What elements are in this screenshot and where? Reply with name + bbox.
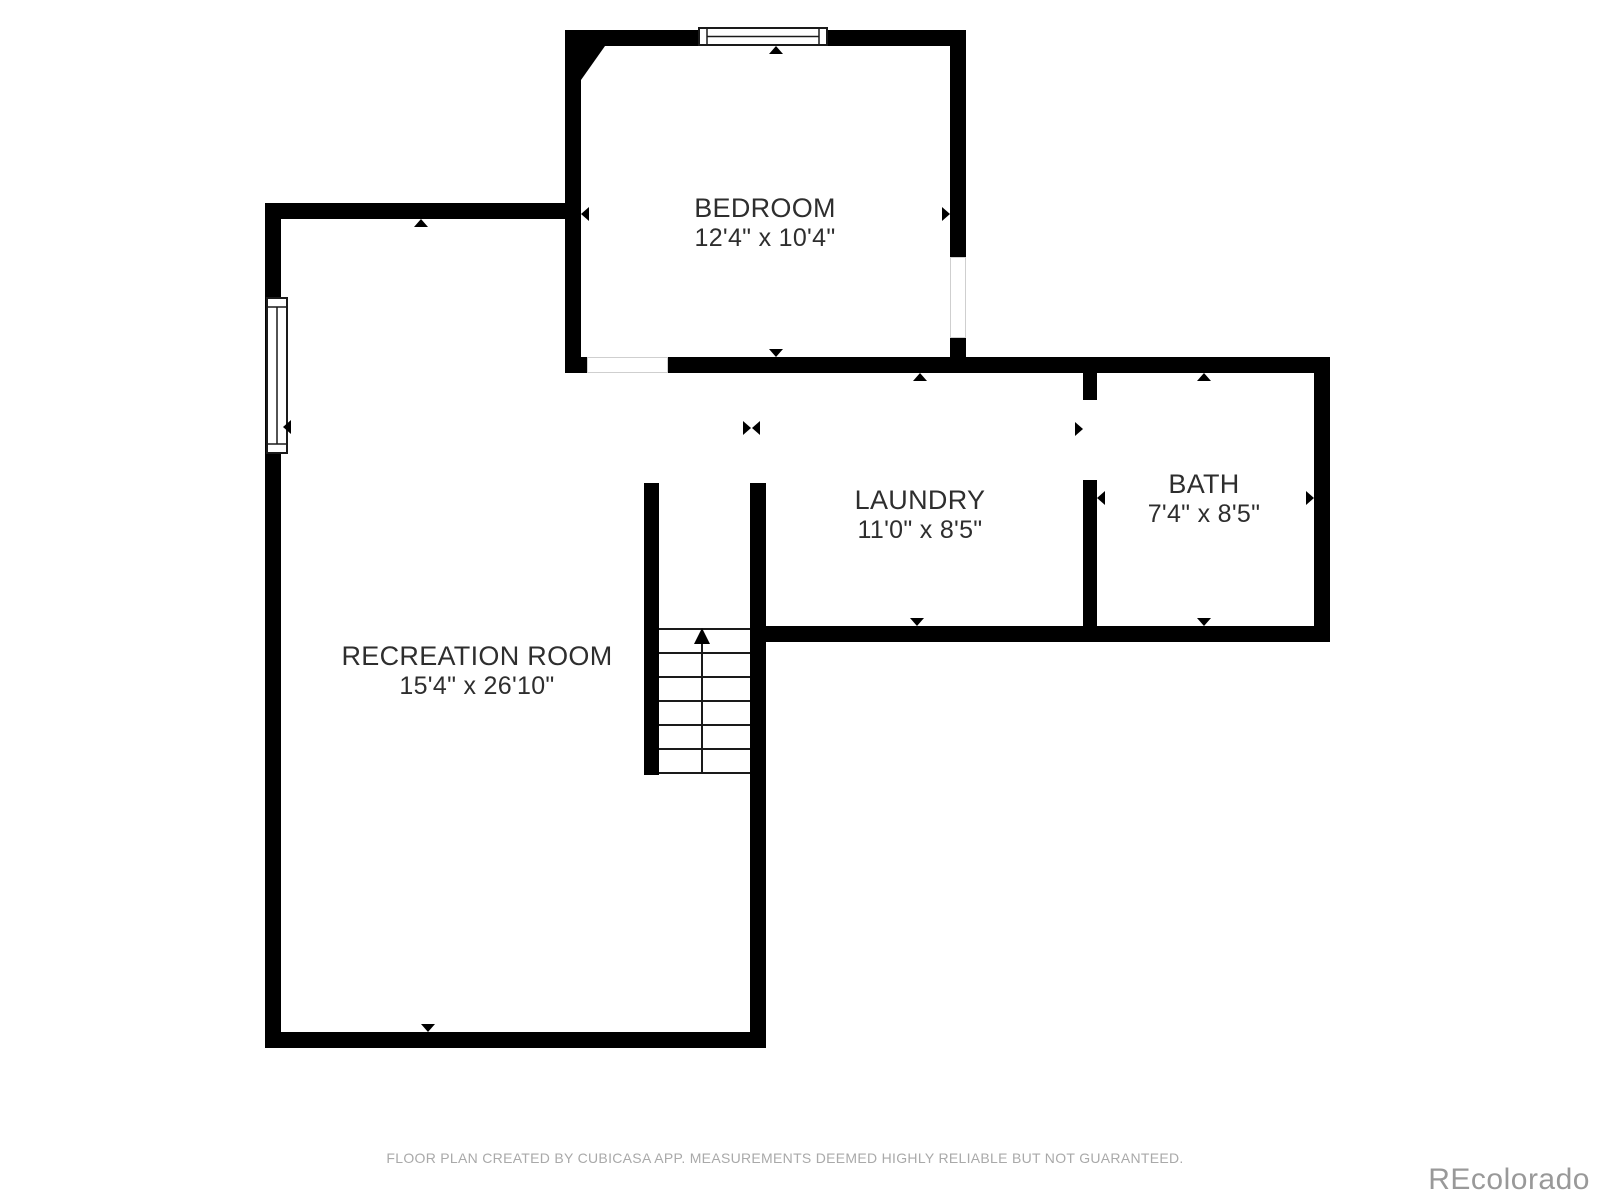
- floor-plan: BEDROOM 12'4" x 10'4" LAUNDRY 11'0" x 8'…: [0, 0, 1600, 1200]
- room-dimensions-bath: 7'4" x 8'5": [1148, 499, 1261, 529]
- watermark-recolorado: REcolorado: [1428, 1163, 1590, 1197]
- room-label-recreation-room: RECREATION ROOM 15'4" x 26'10": [341, 641, 612, 701]
- wall-bath-right: [1314, 357, 1330, 642]
- room-dimensions-laundry: 11'0" x 8'5": [855, 515, 986, 545]
- arrow-marker-hall-boundary-right-icon: [743, 421, 751, 435]
- room-label-bedroom: BEDROOM 12'4" x 10'4": [694, 193, 836, 253]
- arrow-marker-bedroom-bottom-icon: [769, 349, 783, 357]
- arrow-marker-bedroom-left-icon: [581, 207, 589, 221]
- wall-bedroom-corner-chamfer: [581, 46, 605, 80]
- wall-recreation-top: [265, 203, 581, 219]
- arrow-marker-recreation-left-icon: [283, 420, 291, 434]
- wall-recreation-bottom: [265, 1032, 766, 1048]
- room-dimensions-bedroom: 12'4" x 10'4": [694, 223, 836, 253]
- arrow-marker-laundry-bottom-icon: [910, 618, 924, 626]
- arrow-marker-recreation-top-icon: [414, 219, 428, 227]
- wall-bedroom-right-upper: [950, 30, 966, 257]
- opening-bedroom-bottom: [587, 357, 668, 373]
- wall-stair-right: [750, 483, 766, 1048]
- staircase: [659, 626, 750, 775]
- arrow-marker-bath-top-icon: [1197, 373, 1211, 381]
- room-name-bedroom: BEDROOM: [694, 193, 836, 223]
- opening-bedroom-right: [950, 257, 966, 338]
- wall-laundry-bath-bottom: [750, 626, 1330, 642]
- arrow-marker-bath-door-icon: [1075, 422, 1083, 436]
- footer-disclaimer: FLOOR PLAN CREATED BY CUBICASA APP. MEAS…: [386, 1150, 1183, 1166]
- room-label-laundry: LAUNDRY 11'0" x 8'5": [855, 485, 986, 545]
- arrow-marker-bedroom-top-icon: [769, 46, 783, 54]
- arrow-marker-bath-right-icon: [1306, 491, 1314, 505]
- room-dimensions-recreation-room: 15'4" x 26'10": [341, 671, 612, 701]
- wall-bedroom-left: [565, 30, 581, 373]
- arrow-marker-bath-left-icon: [1097, 491, 1105, 505]
- arrow-marker-recreation-bottom-icon: [421, 1024, 435, 1032]
- wall-laundry-bath-divider-lower: [1083, 480, 1097, 642]
- window-bedroom-top-icon: [698, 27, 828, 46]
- wall-laundry-bath-top: [668, 357, 1330, 373]
- wall-laundry-bath-divider-upper: [1083, 373, 1097, 400]
- arrow-marker-bath-bottom-icon: [1197, 618, 1211, 626]
- room-label-bath: BATH 7'4" x 8'5": [1148, 469, 1261, 529]
- arrow-marker-laundry-top-icon: [913, 373, 927, 381]
- wall-hall-top-stub: [565, 357, 587, 373]
- room-name-bath: BATH: [1148, 469, 1261, 499]
- wall-stair-left: [644, 483, 659, 775]
- arrow-marker-bedroom-right-icon: [942, 207, 950, 221]
- room-name-recreation-room: RECREATION ROOM: [341, 641, 612, 671]
- room-name-laundry: LAUNDRY: [855, 485, 986, 515]
- arrow-marker-hall-boundary-left-icon: [752, 421, 760, 435]
